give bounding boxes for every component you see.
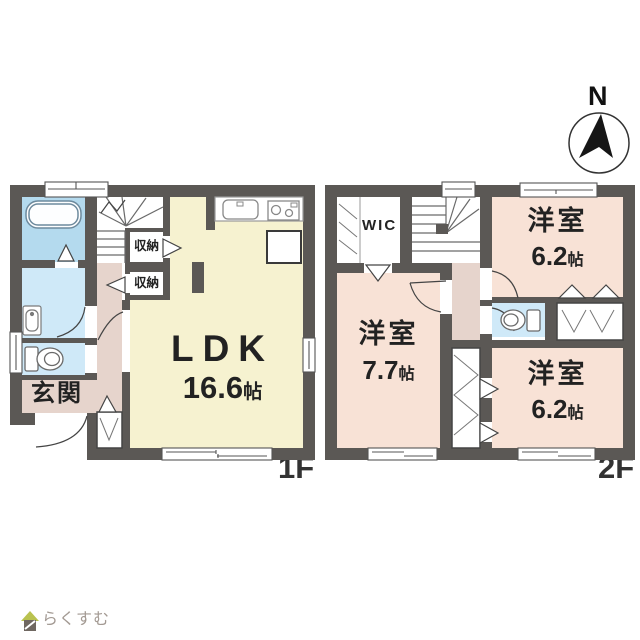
window-ldk-bottom: [162, 448, 272, 460]
floorplan-page: 玄関 収納 収納 床下 収納 LDK 16.6帖 1F WIC 洋室 6.2帖 …: [0, 0, 640, 640]
window-sw-bottom: [368, 448, 437, 460]
window-bath-top: [45, 182, 108, 197]
underfloor-storage-box: [267, 231, 301, 263]
closet-right-icon: [557, 303, 623, 340]
closet-mid-door2-icon: [480, 423, 498, 443]
window-stairs-2f-top: [442, 182, 475, 197]
washroom-door-arc: [57, 307, 85, 337]
window-toilet-left: [10, 332, 22, 373]
entrance-door-arc: [36, 416, 87, 447]
window-se-bottom: [518, 448, 595, 460]
stairs-2f-icon: [412, 197, 480, 251]
wic-door-icon: [366, 265, 390, 281]
kitchen-counter-icon: [215, 197, 303, 221]
washbasin-icon: [23, 306, 41, 335]
bathtub-icon: [26, 201, 81, 228]
window-ldk-right: [303, 338, 315, 372]
closet-mid-door1-icon: [480, 379, 498, 399]
closet-right-door1-icon: [559, 285, 585, 298]
window-ne-top: [520, 183, 597, 197]
closet-right-door2-icon: [593, 285, 619, 298]
room-sw-door: [410, 281, 446, 312]
storage2-door-icon: [107, 277, 125, 293]
shoe-closet-icon: [97, 396, 122, 448]
wic-closet-hatch: [339, 197, 360, 263]
toilet-1f-icon: [25, 347, 63, 371]
compass-label: N: [588, 82, 608, 110]
stove-icon: [268, 201, 299, 220]
storage1-door-icon: [163, 239, 181, 257]
logo-text: らくすむ: [42, 612, 110, 629]
toilet-2f-icon: [501, 310, 540, 331]
linework-layer: [0, 0, 640, 640]
house-icon: [21, 611, 39, 631]
compass-icon: [569, 113, 629, 173]
closet-mid-icon: [452, 348, 480, 448]
hall-ldk-door: [98, 310, 130, 372]
room-ne-door-arc: [492, 271, 518, 298]
bath-door-icon: [58, 245, 74, 261]
